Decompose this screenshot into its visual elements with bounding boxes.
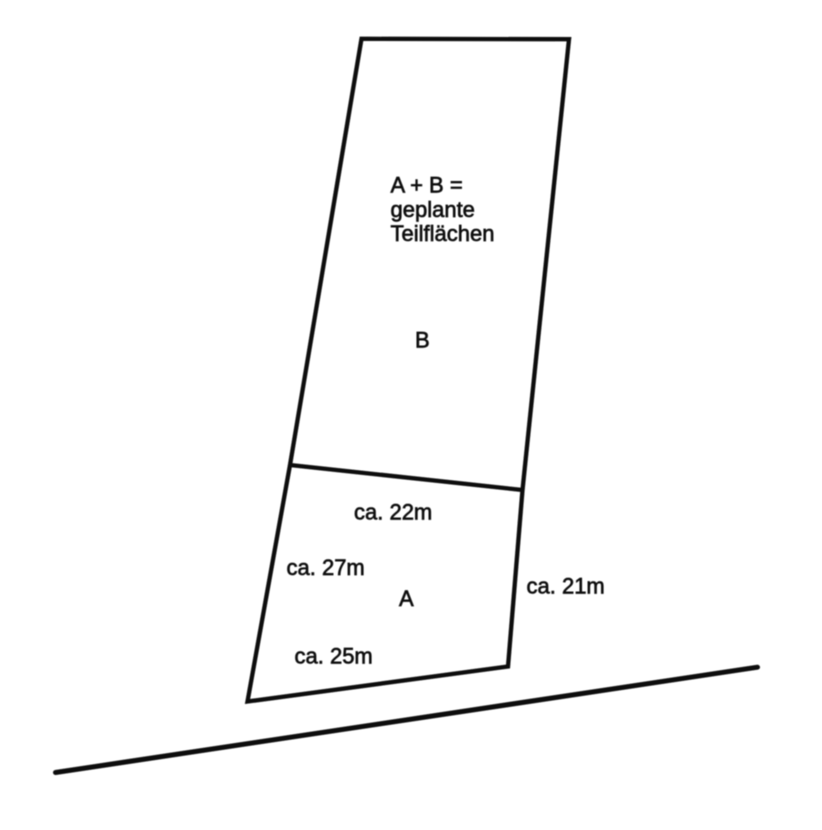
svg-text:ca. 25m: ca. 25m (295, 643, 373, 668)
svg-text:ca. 27m: ca. 27m (287, 555, 365, 580)
svg-text:Teilflächen: Teilflächen (391, 221, 495, 246)
svg-text:A + B =: A + B = (391, 173, 463, 198)
svg-text:ca. 21m: ca. 21m (527, 573, 605, 598)
svg-text:B: B (415, 328, 430, 353)
svg-text:geplante: geplante (391, 197, 475, 222)
svg-text:A: A (399, 586, 414, 611)
svg-text:ca. 22m: ca. 22m (354, 500, 432, 525)
